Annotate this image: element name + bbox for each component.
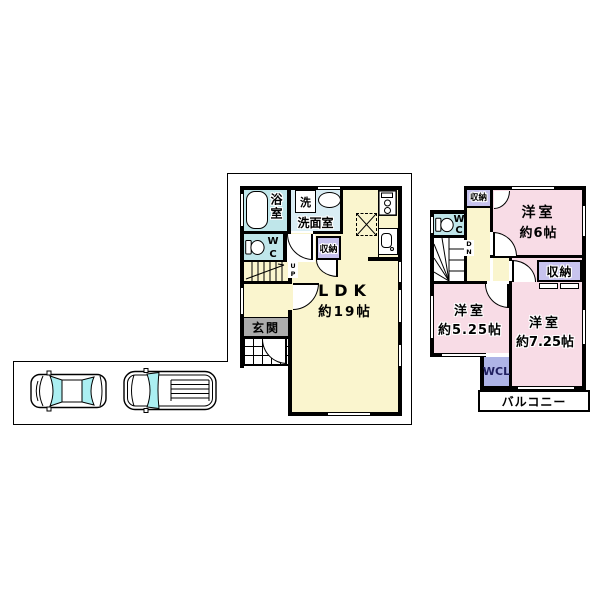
parking-area bbox=[0, 0, 600, 600]
floorplan-canvas: 収納 浴室 洗 洗面室 WC U bbox=[0, 0, 600, 600]
car-sedan bbox=[30, 370, 108, 412]
car-wagon bbox=[123, 368, 218, 413]
